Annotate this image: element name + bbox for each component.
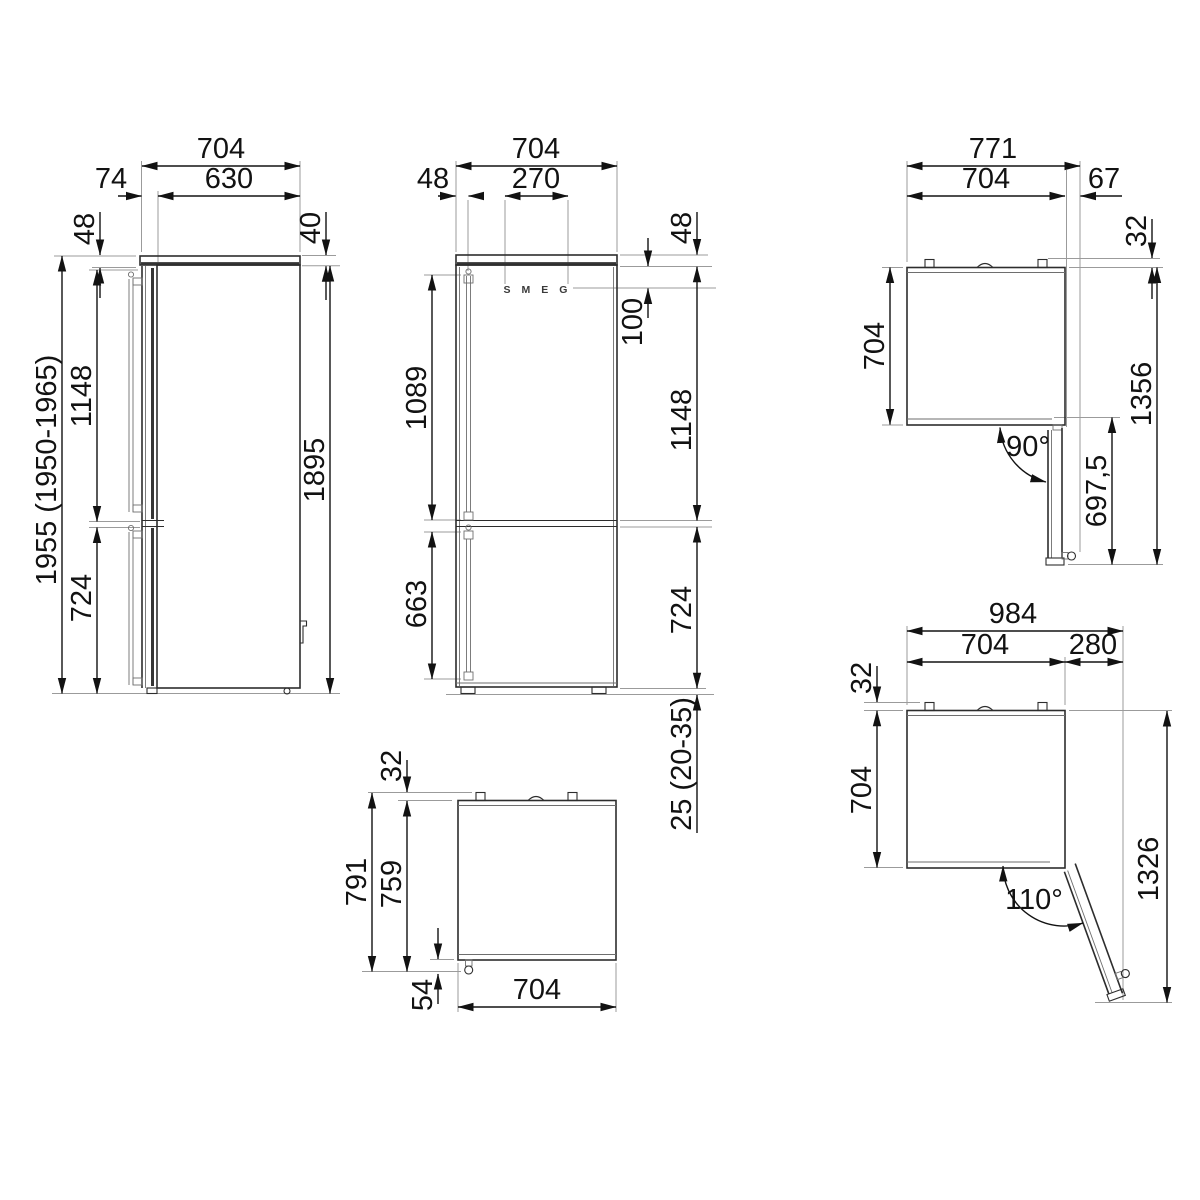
topclosed-left-spacer <box>476 793 485 801</box>
dim-front-top-inset: 48 <box>666 212 698 244</box>
side-dimension-lines <box>62 166 330 694</box>
dim-front-logo-width: 270 <box>512 163 560 195</box>
dim-front-handle-inset: 48 <box>417 163 449 195</box>
front-right-foot <box>592 687 606 694</box>
dim-top90-spacer: 32 <box>1121 215 1153 247</box>
dim-side-lower-section: 724 <box>66 574 98 622</box>
dim-side-top-gap: 48 <box>69 213 101 245</box>
top90-left-spacer <box>925 260 934 268</box>
dim-top110-diagonal-total: 1326 <box>1133 837 1165 902</box>
top110-outline <box>907 703 1136 1002</box>
front-view: SMEG 704 270 48 48 100 1148 724 25 (20-3… <box>401 133 716 833</box>
dim-side-height-body: 1895 <box>299 438 331 503</box>
top110-open-door <box>1061 859 1136 1001</box>
top90-outline <box>907 260 1076 566</box>
side-lower-handle <box>128 525 142 685</box>
dim-side-depth-total: 704 <box>197 133 245 165</box>
top110-cabinet <box>907 711 1065 869</box>
dim-top110-width-total: 984 <box>989 598 1037 630</box>
dim-front-lower-handle: 663 <box>401 580 433 628</box>
dim-top110-depth-left: 704 <box>846 766 878 814</box>
dim-top110-angle: 110° <box>1005 884 1063 916</box>
dim-topclosed-width: 704 <box>513 974 561 1006</box>
dim-topclosed-depth-handle: 759 <box>376 860 408 908</box>
side-cabinet-body <box>157 265 300 688</box>
dim-front-upper-handle: 1089 <box>401 366 433 431</box>
dim-topclosed-spacer: 32 <box>376 750 408 782</box>
dim-top110-depth: 704 <box>961 629 1009 661</box>
top110-extension-lines <box>864 626 1172 1003</box>
dim-side-lid-height: 40 <box>295 212 327 244</box>
topclosed-dimension-lines <box>372 760 616 1007</box>
top90-open-door <box>1046 428 1076 565</box>
topclosed-outline <box>458 793 616 975</box>
top110-door-handle <box>1120 968 1130 978</box>
top110-right-spacer <box>1038 703 1047 711</box>
dim-front-lower-section: 724 <box>666 586 698 634</box>
side-view: 704 630 74 48 40 1148 724 1895 1955 (195… <box>31 133 340 694</box>
dim-top110-door-side: 280 <box>1069 629 1117 661</box>
top110-left-spacer <box>925 703 934 711</box>
dim-top90-depth: 704 <box>962 163 1010 195</box>
dim-top90-angle: 90° <box>1006 431 1050 463</box>
top90-door-handle <box>1068 552 1076 560</box>
dim-top90-door-reach: 697,5 <box>1081 455 1113 528</box>
topclosed-right-spacer <box>568 793 577 801</box>
topclosed-cabinet <box>458 801 616 961</box>
dim-top90-door-side: 67 <box>1088 163 1120 195</box>
topclosed-door-handle <box>465 966 473 974</box>
dim-front-feet-height: 25 (20-35) <box>666 697 698 831</box>
dim-front-width: 704 <box>512 133 560 165</box>
top90-door-end <box>1046 558 1064 565</box>
top90-dimension-lines <box>890 166 1157 565</box>
top90-right-spacer <box>1038 260 1047 268</box>
dim-side-height-total: 1955 (1950-1965) <box>31 355 63 586</box>
top-view-door-90: 771 704 67 32 704 1356 697,5 90° <box>859 133 1163 565</box>
dim-top90-depth-left: 704 <box>859 322 891 370</box>
fridge-dimension-drawing: 704 630 74 48 40 1148 724 1895 1955 (195… <box>0 0 1200 1200</box>
dim-front-logo-drop: 100 <box>617 298 649 346</box>
front-left-foot <box>461 687 475 694</box>
dim-topclosed-depth-hinges: 791 <box>341 858 373 906</box>
dim-front-upper-section: 1148 <box>666 389 698 451</box>
dim-top110-spacer: 32 <box>846 662 878 694</box>
front-fridge-outline: SMEG <box>456 255 617 694</box>
top-view-door-closed: 32 791 759 54 704 <box>341 750 616 1012</box>
side-front-foot <box>147 688 157 694</box>
brand-logo: SMEG <box>504 284 579 296</box>
side-fridge-outline <box>128 256 306 694</box>
top90-cabinet <box>907 268 1065 426</box>
front-upper-handle <box>464 269 473 520</box>
side-rear-bracket <box>300 621 307 643</box>
side-upper-handle <box>128 272 142 512</box>
front-lower-handle <box>464 525 473 680</box>
dim-topclosed-handle-depth: 54 <box>407 979 439 1011</box>
top-view-door-110: 984 704 280 32 704 1326 110° <box>846 598 1172 1003</box>
dim-side-door-front: 74 <box>95 163 127 195</box>
dim-top90-diagonal-total: 1356 <box>1126 362 1158 427</box>
front-cabinet-body <box>456 265 617 687</box>
dimension-drawing-page: 704 630 74 48 40 1148 724 1895 1955 (195… <box>0 0 1200 1200</box>
dim-side-depth-cabinet: 630 <box>205 163 253 195</box>
dim-side-upper-section: 1148 <box>66 365 98 427</box>
dim-top90-width-total: 771 <box>969 133 1017 165</box>
